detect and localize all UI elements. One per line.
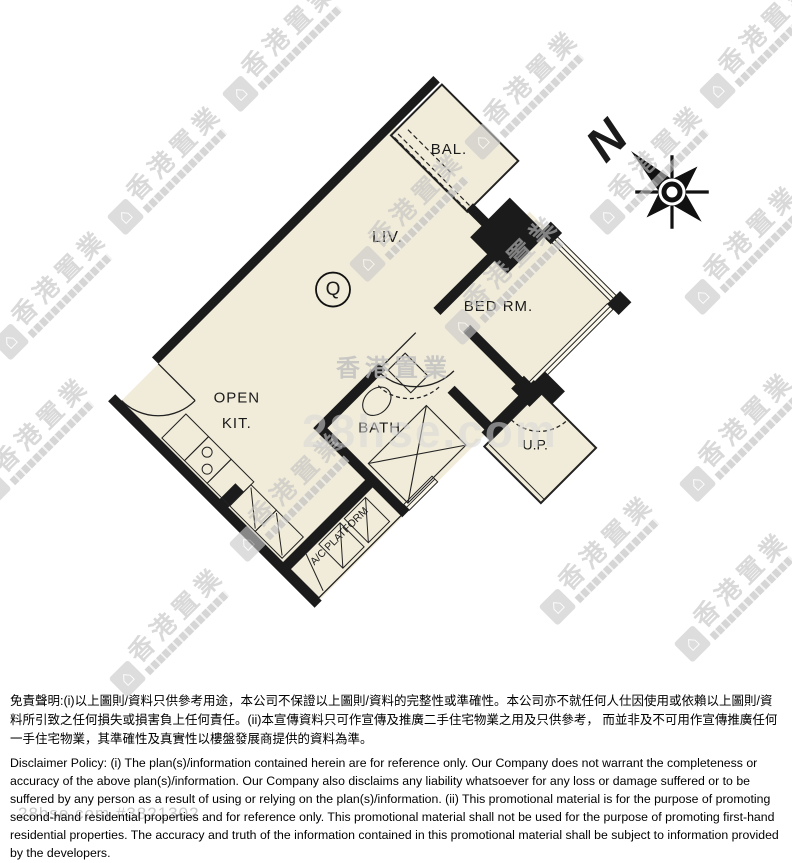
bedroom-label: BED RM.: [464, 298, 534, 315]
compass-north-label: N: [576, 109, 639, 172]
kitchen-label-line1: OPEN: [214, 390, 261, 407]
balcony-label: BAL.: [431, 141, 468, 158]
compass: N: [576, 109, 727, 247]
unit-mark-label: Q: [326, 279, 341, 300]
kitchen-label-line2: KIT.: [222, 415, 252, 432]
disclaimer-block: 免責聲明:(i)以上圖則/資料只供參考用途，本公司不保證以上圖則/資料的完整性或…: [10, 692, 782, 863]
floor-plan-image: { "floor_plan": { "unit_mark": "Q", "lab…: [0, 0, 792, 854]
utility-platform-label: U.P.: [523, 436, 548, 452]
living-room-label: LIV.: [372, 229, 403, 246]
floor-plan-svg: Q BAL. LIV. BED RM. OPEN KIT. BATH U.P. …: [0, 0, 792, 672]
disclaimer-chinese: 免責聲明:(i)以上圖則/資料只供參考用途，本公司不保證以上圖則/資料的完整性或…: [10, 692, 782, 749]
floor-plan-canvas: Q BAL. LIV. BED RM. OPEN KIT. BATH U.P. …: [0, 0, 792, 672]
bath-label: BATH: [358, 419, 401, 436]
disclaimer-english: Disclaimer Policy: (i) The plan(s)/infor…: [10, 755, 782, 863]
